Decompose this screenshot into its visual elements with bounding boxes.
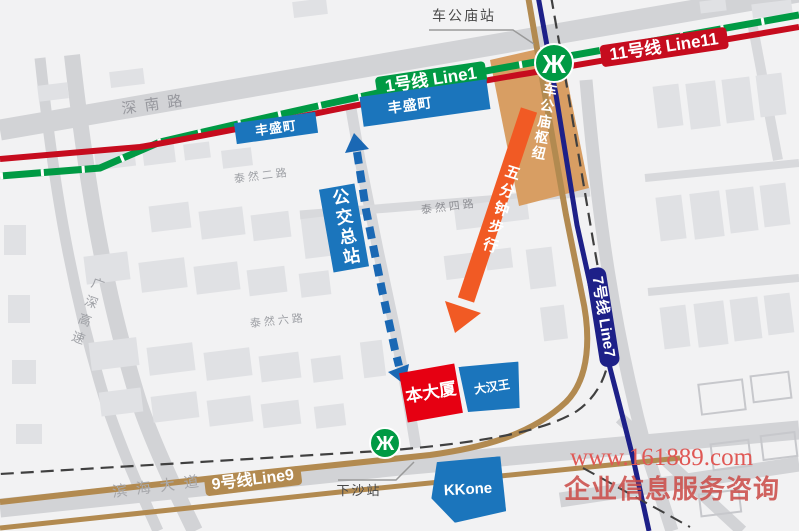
walk-arrowhead — [445, 301, 481, 333]
metro-icon-chegongmiao: Ж — [535, 44, 573, 82]
road-east-street-2 — [648, 278, 799, 292]
station-label-xiasha: 下沙站 — [336, 484, 381, 498]
metro-logo-icon: Ж — [375, 433, 395, 455]
metro-logo-icon: Ж — [541, 49, 566, 79]
main-building-block: 本大厦 — [399, 364, 463, 423]
watermark-site: www.161889.com — [570, 444, 753, 472]
metro-icon-xiasha: Ж — [370, 428, 400, 458]
watermark-caption: 企业信息服务咨询 — [564, 469, 780, 506]
dahanwang-block: 大汉王 — [458, 358, 525, 417]
main-building-label: 本大厦 — [404, 380, 457, 406]
dahanwang-label: 大汉王 — [473, 378, 511, 396]
station-label-chegongmiao: 车公庙站 — [432, 9, 496, 24]
road-east-street-1 — [645, 163, 799, 178]
fengshengding-east-label: 丰盛町 — [387, 95, 434, 116]
fengshengding-west-label: 丰盛町 — [254, 118, 298, 137]
metro-location-map: Ж Ж 车公庙站 下沙站 1号线 Line1 11号线 Line11 7号线 L… — [0, 0, 799, 531]
kkone-label: KKone — [443, 481, 492, 499]
bus-terminal-label: 公交总站 — [328, 187, 359, 269]
